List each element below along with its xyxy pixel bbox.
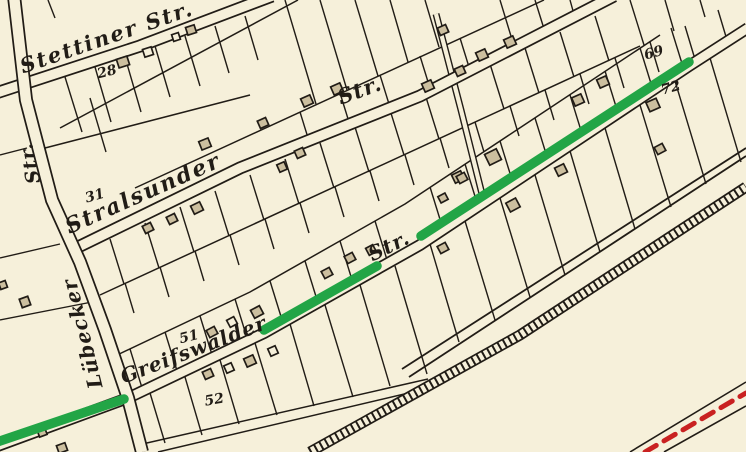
map-svg: Stettiner Str.StralsunderStr.Greifswalde… [0,0,746,452]
building [142,47,153,57]
house-number: 52 [203,390,225,409]
building [0,281,7,290]
building [19,296,31,308]
building [185,25,196,35]
map-canvas: Stettiner Str.StralsunderStr.Greifswalde… [0,0,746,452]
building [172,33,181,42]
